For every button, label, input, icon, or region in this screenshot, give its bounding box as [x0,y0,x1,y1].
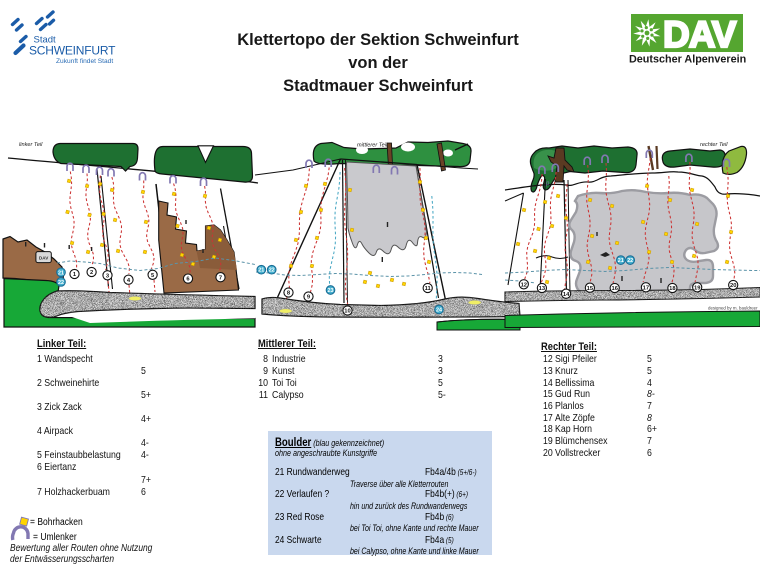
svg-text:20: 20 [730,283,736,289]
svg-text:designed by m. bauldreer: designed by m. bauldreer [708,306,758,311]
svg-text:10: 10 [344,309,350,315]
svg-text:mittlerer Teil: mittlerer Teil [357,143,388,149]
svg-text:11: 11 [425,286,432,292]
svg-text:24: 24 [436,308,442,314]
svg-text:21: 21 [258,268,264,274]
svg-text:15: 15 [587,286,594,292]
svg-text:22: 22 [269,268,275,274]
svg-text:14: 14 [563,292,570,298]
svg-text:23: 23 [328,288,334,294]
svg-text:16: 16 [611,286,618,292]
svg-text:2: 2 [90,270,93,276]
svg-text:17: 17 [643,285,649,291]
svg-text:DAV: DAV [39,255,49,260]
svg-text:21: 21 [618,258,624,264]
svg-text:7: 7 [219,275,222,281]
svg-text:18: 18 [669,286,676,292]
svg-text:rechter Teil: rechter Teil [700,142,728,148]
svg-text:linker Teil: linker Teil [19,142,43,148]
svg-text:13: 13 [539,286,546,292]
svg-text:22: 22 [58,280,64,286]
svg-text:21: 21 [58,270,64,276]
svg-text:12: 12 [521,282,527,288]
svg-text:19: 19 [694,285,701,291]
svg-text:p: p [545,181,550,187]
svg-text:22: 22 [627,258,633,264]
